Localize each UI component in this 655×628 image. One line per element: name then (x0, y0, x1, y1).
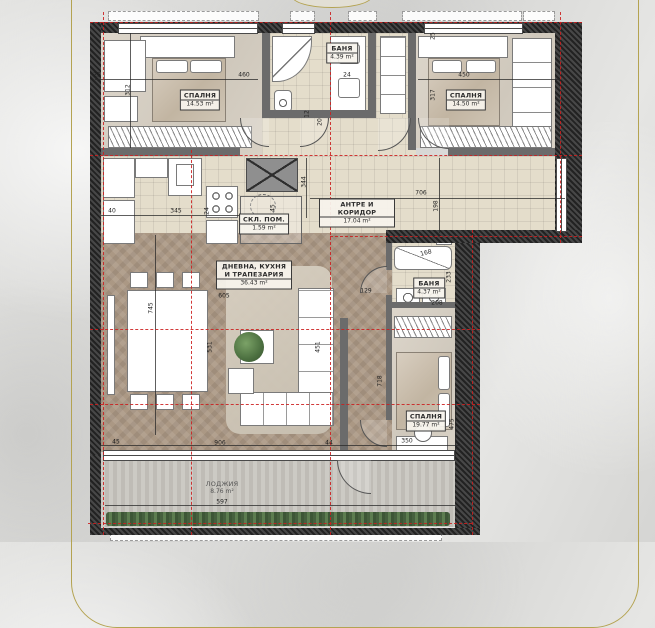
stove (206, 186, 238, 218)
room-label-bathroom-2: БАНЯ4.37 m² (413, 278, 445, 299)
chair (156, 394, 174, 410)
overhang-strip (290, 11, 315, 21)
wall-bedroom1-bath (262, 33, 270, 118)
dimension-label: 25 (430, 32, 437, 40)
room-area: 14.50 m² (447, 101, 485, 110)
room-label-hallway: АНТРЕ И КОРИДОР17.04 m² (319, 199, 395, 228)
dimension-label: 24 (204, 207, 211, 215)
window-hallway (556, 158, 567, 232)
axis-line-vertical (103, 12, 104, 535)
dimension-line (95, 79, 258, 80)
dimension-line (418, 79, 560, 80)
dimension-label: 40 (108, 208, 116, 215)
room-name: ЛОДЖИЯ (203, 479, 242, 488)
room-name: АНТРЕ И КОРИДОР (320, 200, 394, 218)
room-area: 8.76 m² (203, 488, 242, 497)
room-name: СПАЛНЯ (447, 91, 485, 101)
dimension-label: 718 (377, 375, 384, 386)
room-label-bedroom-2: СПАЛНЯ14.50 m² (446, 90, 486, 111)
dimension-label: 312 (125, 84, 132, 95)
side-table (228, 368, 254, 394)
kitchen-counter (135, 158, 168, 178)
axis-line-vertical (330, 12, 331, 535)
window-bedroom1 (118, 23, 258, 34)
room-area: 17.04 m² (320, 218, 394, 227)
dimension-label: 24 (343, 72, 351, 79)
room-area: 1.59 m² (240, 225, 288, 234)
dimension-label: 345 (170, 208, 181, 215)
pillow (190, 60, 222, 73)
dimension-line (439, 158, 440, 233)
dimension-label: 317 (430, 89, 437, 100)
dimension-label: 233 (446, 271, 453, 282)
tv-unit (107, 295, 115, 395)
wall-right-bottom (455, 243, 480, 535)
dimension-label: 745 (148, 302, 155, 313)
dimension-line (101, 445, 461, 446)
overhang-strip (348, 11, 377, 21)
wall-bath2-bedroom3 (392, 302, 455, 308)
axis-line-vertical (472, 230, 473, 535)
wall-bottom-loggia (90, 528, 480, 535)
dimension-label: 20 (317, 118, 324, 126)
wardrobe (512, 38, 552, 138)
wall-bath-bottom (262, 110, 376, 118)
axis-line-horizontal (330, 236, 582, 237)
room-label-bathroom-1: БАНЯ4.39 m² (326, 43, 358, 64)
axis-line-horizontal (90, 22, 582, 23)
overhang-strip (108, 11, 259, 21)
floor-plan-page: { "document": { "kind": "apartment-floor… (0, 0, 655, 542)
room-area: 36.43 m² (217, 280, 291, 289)
dimension-label: 450 (458, 72, 469, 79)
room-name: БАНЯ (414, 279, 444, 289)
pillow (466, 60, 496, 73)
room-area: 4.37 m² (414, 289, 444, 298)
glazing-loggia (103, 450, 455, 461)
kitchen-counter (206, 220, 238, 244)
dimension-label: 344 (301, 176, 308, 187)
room-label-storage: СКЛ. ПОМ.1.59 m² (239, 214, 289, 235)
dimension-label: 605 (218, 293, 229, 300)
dimension-label: 129 (360, 288, 371, 295)
wall-bath-vestibule (368, 33, 376, 118)
dimension-label: 45 (112, 439, 120, 446)
dimension-label: 906 (214, 440, 225, 447)
axis-line-vertical (560, 12, 561, 243)
room-label-living-kitchen-dining: ДНЕВНА, КУХНЯ И ТРАПЕЗАРИЯ36.43 m² (216, 261, 292, 290)
room-name: БАНЯ (327, 44, 357, 54)
plant-icon (234, 332, 264, 362)
dimension-label: 45 (270, 204, 277, 212)
dimension-label: 475 (449, 418, 456, 429)
dimension-line (101, 215, 241, 216)
wall-vestibule-bedroom2 (408, 33, 416, 150)
sofa-chaise (240, 392, 334, 426)
window-bathroom1 (282, 23, 315, 34)
room-label-loggia: ЛОДЖИЯ8.76 m² (203, 479, 242, 497)
axis-line-horizontal (90, 155, 582, 156)
desk (104, 96, 138, 122)
room-area: 14.53 m² (181, 101, 219, 110)
room-name: СПАЛНЯ (181, 91, 219, 101)
dimension-label: 531 (207, 341, 214, 352)
room-label-bedroom-1: СПАЛНЯ14.53 m² (180, 90, 220, 111)
room-name: СКЛ. ПОМ. (240, 215, 288, 225)
axis-line-vertical (191, 150, 192, 535)
room-name: СПАЛНЯ (407, 412, 445, 422)
dimension-line (155, 235, 156, 435)
room-area: 19.77 m² (407, 422, 445, 431)
axis-line-horizontal (88, 523, 472, 524)
dimension-line (306, 158, 307, 218)
floor-plan: СПАЛНЯ14.53 m²БАНЯ4.39 m²СПАЛНЯ14.50 m²А… (0, 0, 655, 542)
dimension-label: 198 (433, 200, 440, 211)
room-name: ДНЕВНА, КУХНЯ И ТРАПЕЗАРИЯ (217, 262, 291, 280)
chair (130, 394, 148, 410)
window-bedroom2 (424, 23, 523, 34)
dimension-label: 460 (238, 72, 249, 79)
wall-living-corridor (340, 318, 348, 452)
axis-line-horizontal (90, 404, 480, 405)
pillow (438, 356, 450, 390)
dimension-label: 706 (415, 190, 426, 197)
dimension-label: 350 (401, 438, 412, 445)
chair (130, 272, 148, 288)
dimension-line (105, 505, 455, 506)
washbasin (338, 78, 360, 98)
dimension-label: 208 (431, 300, 442, 307)
overhang-strip (523, 11, 555, 21)
dimension-label: 451 (315, 341, 322, 352)
tall-kitchen-unit (246, 158, 298, 192)
room-area: 4.39 m² (327, 54, 357, 63)
entry-wardrobe (380, 36, 406, 114)
headboard-shelf (140, 36, 235, 58)
dimension-label: 25 (93, 72, 101, 79)
toilet (274, 90, 292, 112)
wardrobe (394, 316, 452, 338)
dimension-label: 12 (304, 110, 311, 118)
overhang-strip (402, 11, 522, 21)
axis-line-horizontal (90, 329, 480, 330)
room-label-bedroom-3: СПАЛНЯ19.77 m² (406, 411, 446, 432)
wall-corridor-bedroom3 (386, 295, 392, 420)
dimension-label: 44 (325, 440, 333, 447)
chair (156, 272, 174, 288)
dimension-label: 597 (216, 499, 227, 506)
wall-left (90, 22, 101, 455)
pillow (156, 60, 188, 73)
dining-table (127, 290, 208, 392)
kitchen-cabinet (103, 158, 135, 198)
